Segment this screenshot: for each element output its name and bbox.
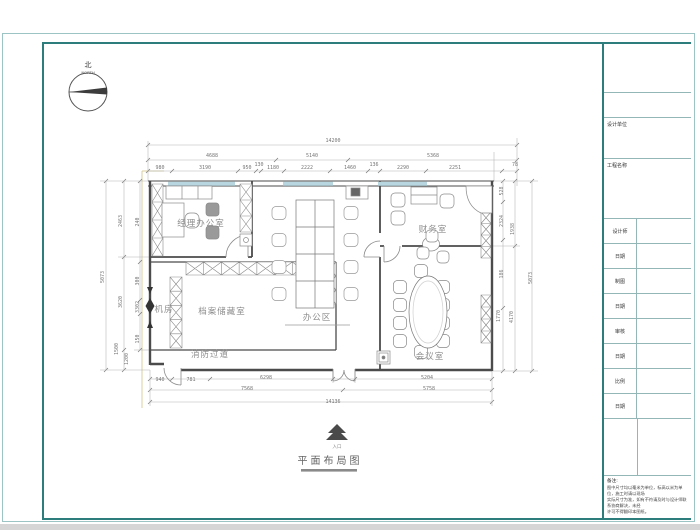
titleblock-row-label: 审核 [604, 319, 637, 343]
titleblock-row-value [637, 369, 691, 393]
dimension-text: 150 [135, 334, 141, 343]
room-label: 办公区 [303, 312, 332, 323]
entrance-label: 入口 [332, 444, 342, 450]
dimension-text: 5140 [306, 153, 318, 159]
dimension-text: 3302 [135, 301, 141, 313]
dimension-text: 3620 [118, 296, 124, 308]
notes-title: 备注: [607, 478, 688, 484]
dimension-text: 5204 [421, 375, 433, 381]
dimension-text: 186 [499, 269, 505, 278]
titleblock-row: 日期 [604, 344, 691, 369]
side-chair [344, 207, 358, 220]
dimension-text: 3190 [199, 165, 211, 171]
dimension-text: 950 [242, 165, 251, 171]
titleblock-tall-cell [604, 419, 691, 475]
dimension-text: 78 [512, 162, 518, 168]
dimension-text: 940 [155, 377, 164, 383]
drawing-sheet: 北 NORTH [0, 0, 700, 530]
meeting-chair [394, 335, 407, 348]
titleblock-row-value [637, 244, 691, 268]
titleblock-row: 日期 [604, 394, 691, 419]
dimension-text: 5073 [100, 271, 106, 283]
project-label: 工程名称 [607, 162, 627, 169]
side-chair [272, 261, 286, 274]
dimension-text: 1460 [344, 165, 356, 171]
meeting-chair [415, 265, 428, 278]
dimension-text: 2290 [397, 165, 409, 171]
meeting-chair [394, 281, 407, 294]
company-label: 设计单位 [607, 121, 627, 128]
titleblock-rows: 设计师日期制图日期审核日期比例日期 [604, 219, 691, 419]
dimension-text: 1938 [510, 223, 516, 235]
room-label: 档案储藏室 [198, 306, 246, 317]
cabinet-run [152, 184, 163, 256]
dimension-text: 6298 [260, 375, 272, 381]
dimension-text: 7568 [241, 386, 253, 392]
dimension-text: 14200 [325, 138, 340, 144]
side-chair [344, 288, 358, 301]
dimension-text: 300 [135, 276, 141, 285]
north-word: NORTH [81, 70, 95, 75]
windows [168, 182, 427, 186]
dimension-text: 4688 [206, 153, 218, 159]
side-chair [272, 234, 286, 247]
north-arrow-icon: 北 NORTH [69, 61, 107, 111]
titleblock-row-label: 日期 [604, 244, 637, 268]
dimension-text: 781 [186, 377, 195, 383]
titleblock-row-value [637, 219, 691, 243]
dimension-text: 5368 [427, 153, 439, 159]
room-label: 消防过道 [191, 349, 229, 360]
titleblock-row-value [637, 394, 691, 418]
dimension-text: 4170 [509, 311, 515, 323]
titleblock-row-value [637, 294, 691, 318]
dimension-text: 2463 [118, 215, 124, 227]
titleblock-row: 日期 [604, 244, 691, 269]
titleblock-row-label: 日期 [604, 344, 637, 368]
dimension-text: 136 [369, 162, 378, 168]
dimension-text: 1180 [267, 165, 279, 171]
dimension-text: 1500 [114, 343, 120, 355]
titleblock-project-cell: 工程名称 [604, 159, 691, 219]
titleblock-row-label: 设计师 [604, 219, 637, 243]
side-chair [272, 207, 286, 220]
machine-room-symbols [146, 287, 155, 328]
titleblock-row: 设计师 [604, 219, 691, 244]
meeting-chair [394, 317, 407, 330]
titleblock-row-label: 日期 [604, 294, 637, 318]
dimension-text: 980 [155, 165, 164, 171]
titleblock-row-label: 比例 [604, 369, 637, 393]
floor-plan: 北 NORTH [44, 44, 600, 518]
room-label: 财务室 [419, 224, 448, 235]
dimension-text: 1770 [496, 310, 502, 322]
titleblock-blank-cell [604, 93, 691, 118]
meeting-chair [394, 299, 407, 312]
title-block: 设计单位 工程名称 设计师日期制图日期审核日期比例日期 备注: 图中尺寸均以毫米… [602, 44, 691, 518]
dimension-text: 5758 [423, 386, 435, 392]
dimension-text: 2251 [449, 165, 461, 171]
notes-line: 实际尺寸为准，如有不符请及时与设计师联系协商解决，未经 [607, 497, 688, 509]
entrance-marker-icon: 入口 [326, 424, 348, 450]
drawing-title-text: 平面布局图 [298, 455, 363, 467]
dimension-text: 1200 [124, 353, 130, 365]
dimension-text: 2324 [499, 215, 505, 227]
cabinet-run [481, 295, 491, 343]
titleblock-row: 比例 [604, 369, 691, 394]
dimension-text: 5073 [528, 272, 534, 284]
inner-frame: 北 NORTH [42, 42, 691, 520]
cabinet-run [481, 212, 491, 258]
cabinet-run [240, 184, 252, 232]
notes-line: 图中尺寸均以毫米为单位，标高以米为单位，施工时请以现场 [607, 485, 688, 497]
titleblock-row: 审核 [604, 319, 691, 344]
dimension-text: 2222 [301, 165, 313, 171]
titleblock-row-label: 日期 [604, 394, 637, 418]
room-label: 机房 [154, 304, 173, 315]
titleblock-row-value [637, 344, 691, 368]
titleblock-logo-cell [604, 44, 691, 93]
titleblock-row: 日期 [604, 294, 691, 319]
room-label: 会议室 [416, 351, 445, 362]
titleblock-row-value [637, 319, 691, 343]
titleblock-row: 制图 [604, 269, 691, 294]
notes-line: 许可不得翻印本图纸。 [607, 509, 688, 515]
side-chair [344, 234, 358, 247]
side-chair [344, 261, 358, 274]
cabinet-run [186, 262, 310, 275]
dimension-text: 240 [135, 217, 141, 226]
dimension-text: 130 [254, 162, 263, 168]
titleblock-notes: 备注: 图中尺寸均以毫米为单位，标高以米为单位，施工时请以现场实际尺寸为准，如有… [604, 475, 691, 518]
titleblock-row-label: 制图 [604, 269, 637, 293]
dimension-text: 528 [499, 186, 505, 195]
titleblock-company-cell: 设计单位 [604, 118, 691, 159]
titleblock-row-value [637, 269, 691, 293]
north-char: 北 [85, 61, 92, 69]
room-label: 经理办公室 [177, 218, 225, 229]
side-chair [272, 288, 286, 301]
drawing-title: 平面布局图 [298, 455, 363, 472]
dimension-text: 14136 [325, 399, 340, 405]
page-edge [0, 524, 700, 530]
